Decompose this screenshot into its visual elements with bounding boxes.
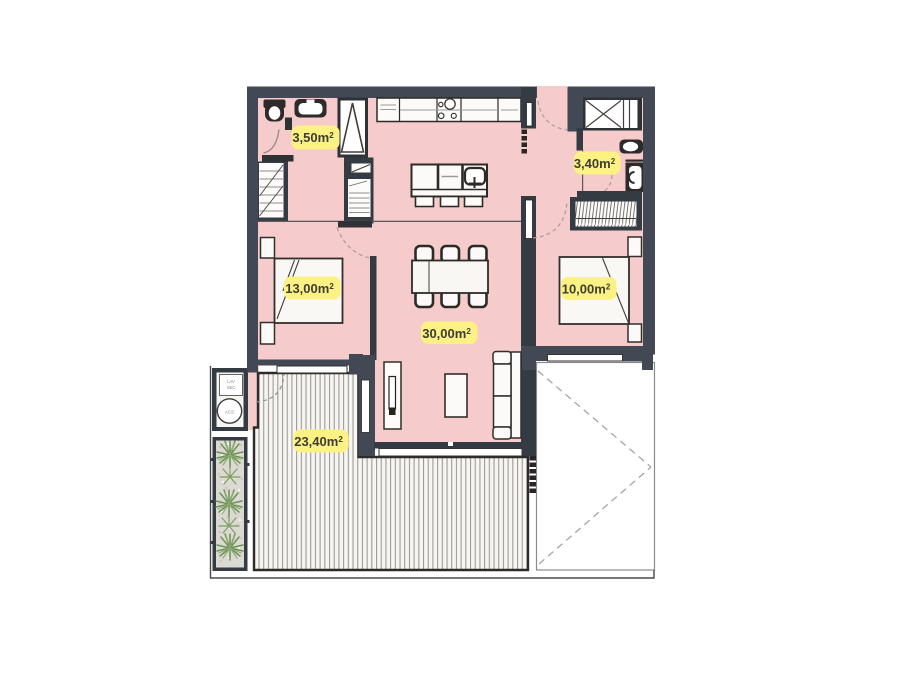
svg-text:30,00m2: 30,00m2 bbox=[422, 326, 471, 341]
svg-text:3,50m2: 3,50m2 bbox=[292, 130, 334, 145]
svg-text:3,40m2: 3,40m2 bbox=[574, 156, 616, 171]
svg-text:SEC: SEC bbox=[227, 385, 236, 390]
svg-text:13,00m2: 13,00m2 bbox=[285, 281, 334, 296]
svg-text:ACS: ACS bbox=[225, 410, 234, 415]
svg-text:10,00m2: 10,00m2 bbox=[562, 282, 611, 297]
svg-text:23,40m2: 23,40m2 bbox=[294, 434, 343, 449]
svg-text:LAV: LAV bbox=[227, 379, 235, 384]
